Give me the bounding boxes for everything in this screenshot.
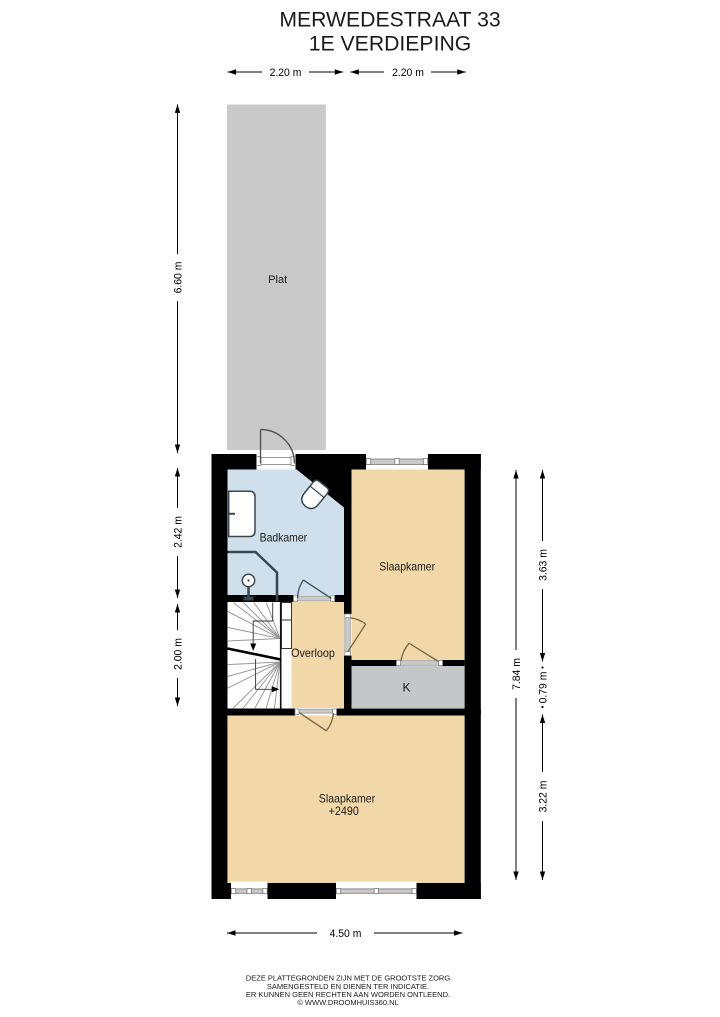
svg-text:+2490: +2490	[329, 804, 359, 818]
svg-text:Overloop: Overloop	[291, 646, 335, 660]
svg-text:K: K	[402, 680, 410, 694]
svg-text:4.50 m: 4.50 m	[330, 928, 362, 940]
svg-text:3.22 m: 3.22 m	[538, 781, 550, 813]
svg-text:2.42 m: 2.42 m	[173, 516, 185, 548]
svg-text:6.60 m: 6.60 m	[173, 262, 185, 294]
svg-text:7.84 m: 7.84 m	[511, 658, 523, 690]
svg-text:© WWW.DROOMHUIS360.NL: © WWW.DROOMHUIS360.NL	[297, 998, 398, 1007]
svg-text:2.20 m: 2.20 m	[392, 67, 424, 79]
svg-text:Badkamer: Badkamer	[260, 531, 308, 545]
svg-text:0.79 m: 0.79 m	[538, 672, 550, 704]
svg-text:2.20 m: 2.20 m	[270, 67, 302, 79]
svg-text:1E VERDIEPING: 1E VERDIEPING	[309, 33, 472, 56]
svg-text:MERWEDESTRAAT 33: MERWEDESTRAAT 33	[279, 9, 500, 32]
svg-text:Slaapkamer: Slaapkamer	[379, 559, 435, 573]
svg-text:3.63 m: 3.63 m	[538, 549, 550, 581]
svg-text:2.00 m: 2.00 m	[173, 638, 185, 670]
svg-text:Plat: Plat	[268, 274, 287, 286]
